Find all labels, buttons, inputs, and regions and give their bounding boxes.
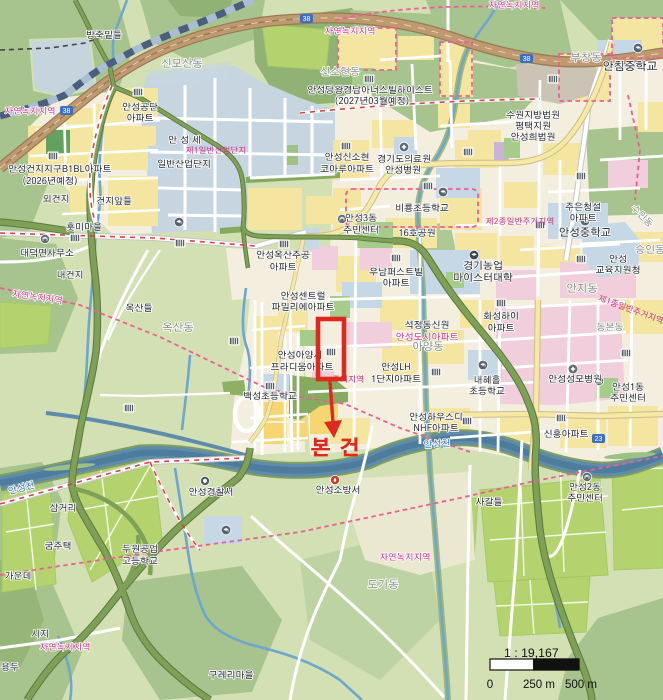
svg-text:38: 38: [523, 56, 531, 63]
svg-text:250 m: 250 m: [523, 679, 555, 691]
svg-text:23: 23: [595, 436, 603, 443]
svg-text:1 : 19,167: 1 : 19,167: [504, 646, 559, 660]
svg-text:500 m: 500 m: [565, 679, 597, 691]
svg-text:38: 38: [63, 108, 71, 115]
svg-text:0: 0: [487, 679, 493, 691]
svg-text:38: 38: [303, 16, 311, 23]
